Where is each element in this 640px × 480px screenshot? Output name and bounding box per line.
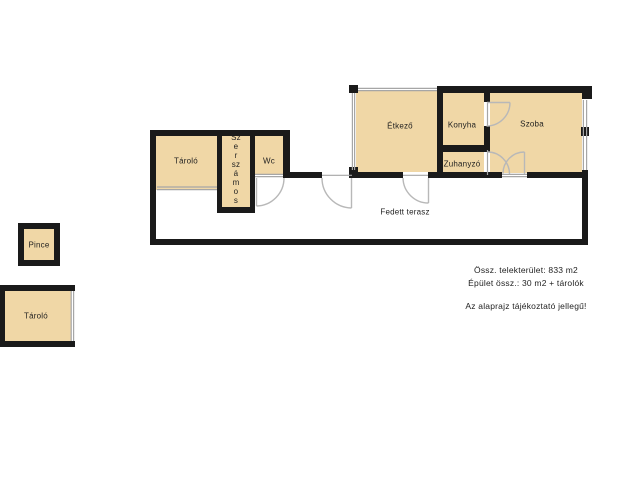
room-label-szerszamos: Sz e r sz á m o s	[231, 133, 241, 205]
etkezo-right-wall	[437, 86, 443, 172]
room-label-wc: Wc	[263, 157, 275, 166]
szerszamos-bottom-wall	[217, 207, 255, 213]
terrace-bottom-wall	[150, 239, 588, 245]
terrace-top-wall-segment	[283, 172, 322, 178]
top-wall-right-block	[437, 86, 590, 93]
konyha-szoba-wall-upper	[484, 86, 490, 102]
room-label-konyha: Konyha	[448, 121, 476, 130]
outer-left-wall	[150, 130, 156, 245]
room-fill-wc	[255, 136, 283, 174]
etkezo-bottom-wall-left	[349, 172, 403, 178]
note-plot-area: Össz. telekterület: 833 m2	[420, 264, 632, 277]
etkezo-corner-top-left	[349, 85, 358, 93]
note-building-area: Épület össz.: 30 m2 + tárolók	[420, 277, 632, 290]
room-label-szoba: Szoba	[520, 120, 544, 129]
etkezo-top-window	[358, 88, 437, 90]
konyha-szoba-wall-lower	[484, 126, 490, 152]
floorplan-canvas: Tároló Sz e r sz á m o s Wc Étkező Konyh…	[0, 0, 640, 480]
szoba-bottom-wall	[527, 172, 588, 178]
room-fill-konyha	[443, 93, 484, 145]
tarolo-lower-left-wall	[0, 285, 5, 347]
etkezo-door-arc	[403, 178, 429, 203]
room-label-tarolo-upper: Tároló	[174, 157, 198, 166]
room-label-fedett-terasz: Fedett terasz	[380, 208, 429, 217]
etkezo-zuhanyzo-bottom-wall	[428, 172, 502, 178]
floorplan-drawing	[0, 0, 640, 480]
szerszamos-right-wall	[250, 130, 255, 213]
note-disclaimer: Az alaprajz tájékoztató jellegű!	[420, 300, 632, 313]
konyha-bottom-wall	[437, 145, 490, 152]
room-label-pince: Pince	[28, 241, 49, 250]
szerszamos-left-wall	[217, 130, 222, 213]
room-label-tarolo-lower: Tároló	[24, 312, 48, 321]
plan-notes: Össz. telekterület: 833 m2 Épület össz.:…	[420, 264, 632, 313]
etkezo-left-window	[352, 93, 354, 170]
room-label-zuhanyzo: Zuhanyzó	[444, 160, 481, 169]
wc-door-opening	[255, 174, 283, 176]
szoba-window-mullion	[581, 127, 589, 136]
wc-right-wall	[283, 130, 290, 178]
room-fill-szoba	[490, 93, 582, 173]
tarolo-lower-top-wall	[0, 285, 75, 291]
szoba-terrace-door-opening	[502, 174, 527, 176]
room-fill-etkezo	[356, 91, 437, 172]
room-label-etkezo: Étkező	[387, 122, 413, 131]
tarolo-lower-opening	[71, 291, 73, 341]
wc-door-arc	[257, 178, 285, 206]
tarolo-lower-bottom-wall	[0, 341, 75, 347]
right-wall-bottom	[582, 170, 588, 245]
terrace-door-arc	[322, 178, 352, 208]
